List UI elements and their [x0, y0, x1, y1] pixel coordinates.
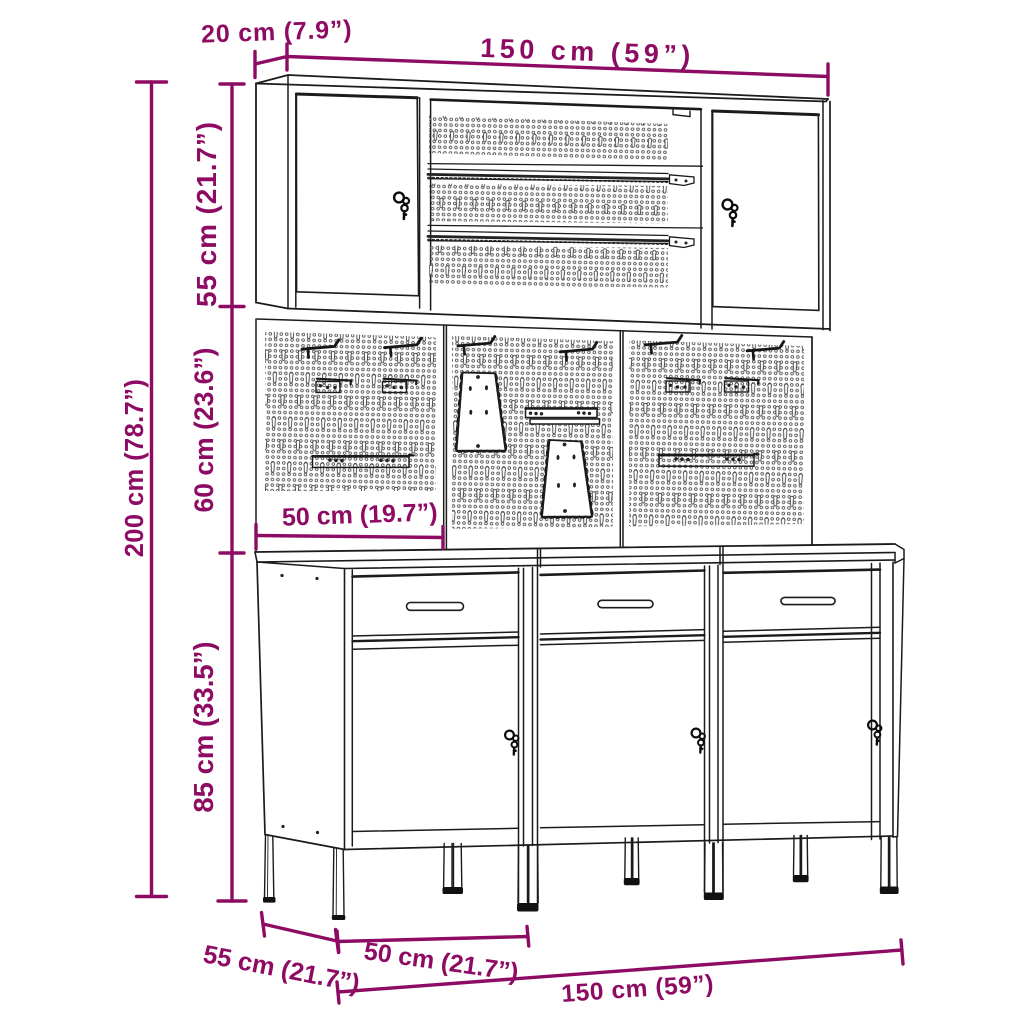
- svg-text:50 cm (19.7”): 50 cm (19.7”): [281, 498, 438, 531]
- svg-text:200 cm (78.7”): 200 cm (78.7”): [121, 379, 149, 558]
- svg-text:150 cm (59”): 150 cm (59”): [561, 970, 715, 1008]
- svg-text:85 cm (33.5”): 85 cm (33.5”): [188, 641, 219, 812]
- svg-text:50 cm (21.7”): 50 cm (21.7”): [362, 937, 520, 986]
- svg-text:20 cm (7.9”): 20 cm (7.9”): [201, 15, 353, 48]
- svg-text:60 cm (23.6”): 60 cm (23.6”): [189, 348, 219, 513]
- svg-text:55 cm (21.7”): 55 cm (21.7”): [191, 121, 222, 307]
